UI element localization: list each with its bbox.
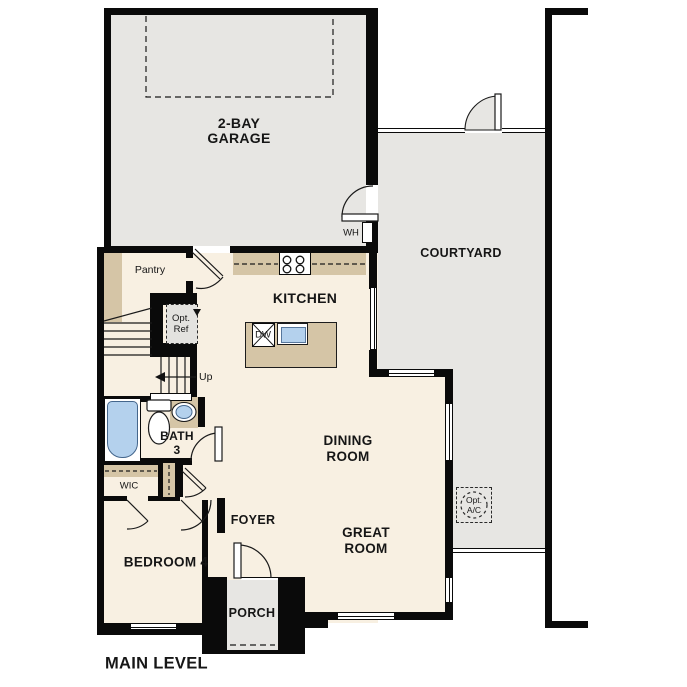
opt-ref-label: Opt. Ref (172, 313, 190, 335)
island-sink-basin (281, 327, 306, 343)
stair-landing-threshold (150, 393, 192, 401)
bath3-label-line2: 3 (160, 443, 194, 457)
floorplan: 2-BAY GARAGE COURTYARD KITCHEN DINING RO… (0, 0, 687, 687)
porch-west-wall (202, 577, 227, 654)
closet-east-wall (175, 463, 183, 497)
pantry-shelf (104, 253, 122, 322)
opt-ref-label-line1: Opt. (172, 313, 190, 324)
courtyard-gate-arc (465, 96, 499, 130)
garage-east-wall-upper (366, 8, 378, 185)
garage-label-line2: GARAGE (207, 131, 270, 146)
garage-label-line1: 2-BAY (207, 116, 270, 131)
kitchen-east-wall-a (369, 253, 377, 289)
great-south-wall-notch (305, 612, 328, 628)
east-wall-a (445, 377, 453, 403)
east-wall-b (445, 461, 453, 577)
dishwasher-label: DW (255, 330, 271, 341)
water-heater-label: WH (343, 228, 359, 239)
great-south-window (337, 612, 395, 620)
water-heater-box (362, 222, 373, 243)
great-south-wall-b (395, 612, 453, 620)
bath3-label: BATH 3 (160, 429, 194, 457)
bedroom4-label: BEDROOM 4 (124, 555, 208, 570)
bedroom-north-wall-a (97, 496, 127, 501)
dining-label-line2: ROOM (323, 449, 372, 465)
courtyard-fence-south (453, 548, 545, 553)
courtyard-label: COURTYARD (420, 246, 501, 260)
foyer-west-stub (217, 498, 225, 533)
bath3-label-line1: BATH (160, 429, 194, 443)
opt-ac-label: Opt. A/C (466, 495, 482, 515)
great-room-label: GREAT ROOM (342, 525, 390, 557)
bath-vanity (170, 397, 198, 428)
bathtub (107, 401, 138, 458)
kitchen-slider-door (370, 287, 377, 350)
dining-north-wall-b (435, 369, 453, 377)
courtyard-east-wall (545, 8, 552, 628)
garage-north-wall (104, 8, 378, 15)
dining-north-window (388, 369, 435, 377)
dining-north-wall-a (371, 369, 388, 377)
wic-shelf (104, 465, 158, 477)
wic-label: WIC (120, 481, 138, 492)
courtyard-fence-right (502, 128, 545, 133)
courtyard-gate-panel (495, 94, 501, 130)
stairs-up-label: Up (199, 371, 212, 383)
garage-kitchen-wall-a (104, 246, 193, 253)
level-title: MAIN LEVEL (105, 655, 208, 674)
courtyard-fence-left (378, 128, 465, 133)
great-label-line1: GREAT (342, 525, 390, 541)
southeast-wall-stub (545, 621, 588, 628)
opt-ref-label-line2: Ref (172, 324, 190, 335)
vanity-east-wall (197, 397, 205, 427)
great-label-line2: ROOM (342, 541, 390, 557)
porch-east-wall (278, 577, 305, 654)
garage-west-wall (104, 8, 111, 253)
dining-east-window (445, 403, 453, 461)
hall-linen-closet (163, 463, 175, 497)
dining-label-line1: DINING (323, 433, 372, 449)
interior-floor-east (378, 369, 453, 620)
foyer-label: FOYER (231, 513, 276, 527)
porch-label: PORCH (229, 606, 276, 620)
kitchen-label: KITCHEN (273, 290, 337, 306)
northeast-wall-stub (545, 8, 588, 15)
opt-ac-label-line2: A/C (466, 505, 482, 515)
west-exterior-wall (97, 247, 104, 635)
pantry-label: Pantry (135, 264, 165, 276)
great-east-window (445, 577, 453, 603)
opt-ac-label-line1: Opt. (466, 495, 482, 505)
dining-room-label: DINING ROOM (323, 433, 372, 465)
pantry-jamb-top (186, 246, 193, 258)
garage-label: 2-BAY GARAGE (207, 116, 270, 146)
bedroom-window (130, 623, 177, 630)
cooktop (279, 252, 311, 275)
